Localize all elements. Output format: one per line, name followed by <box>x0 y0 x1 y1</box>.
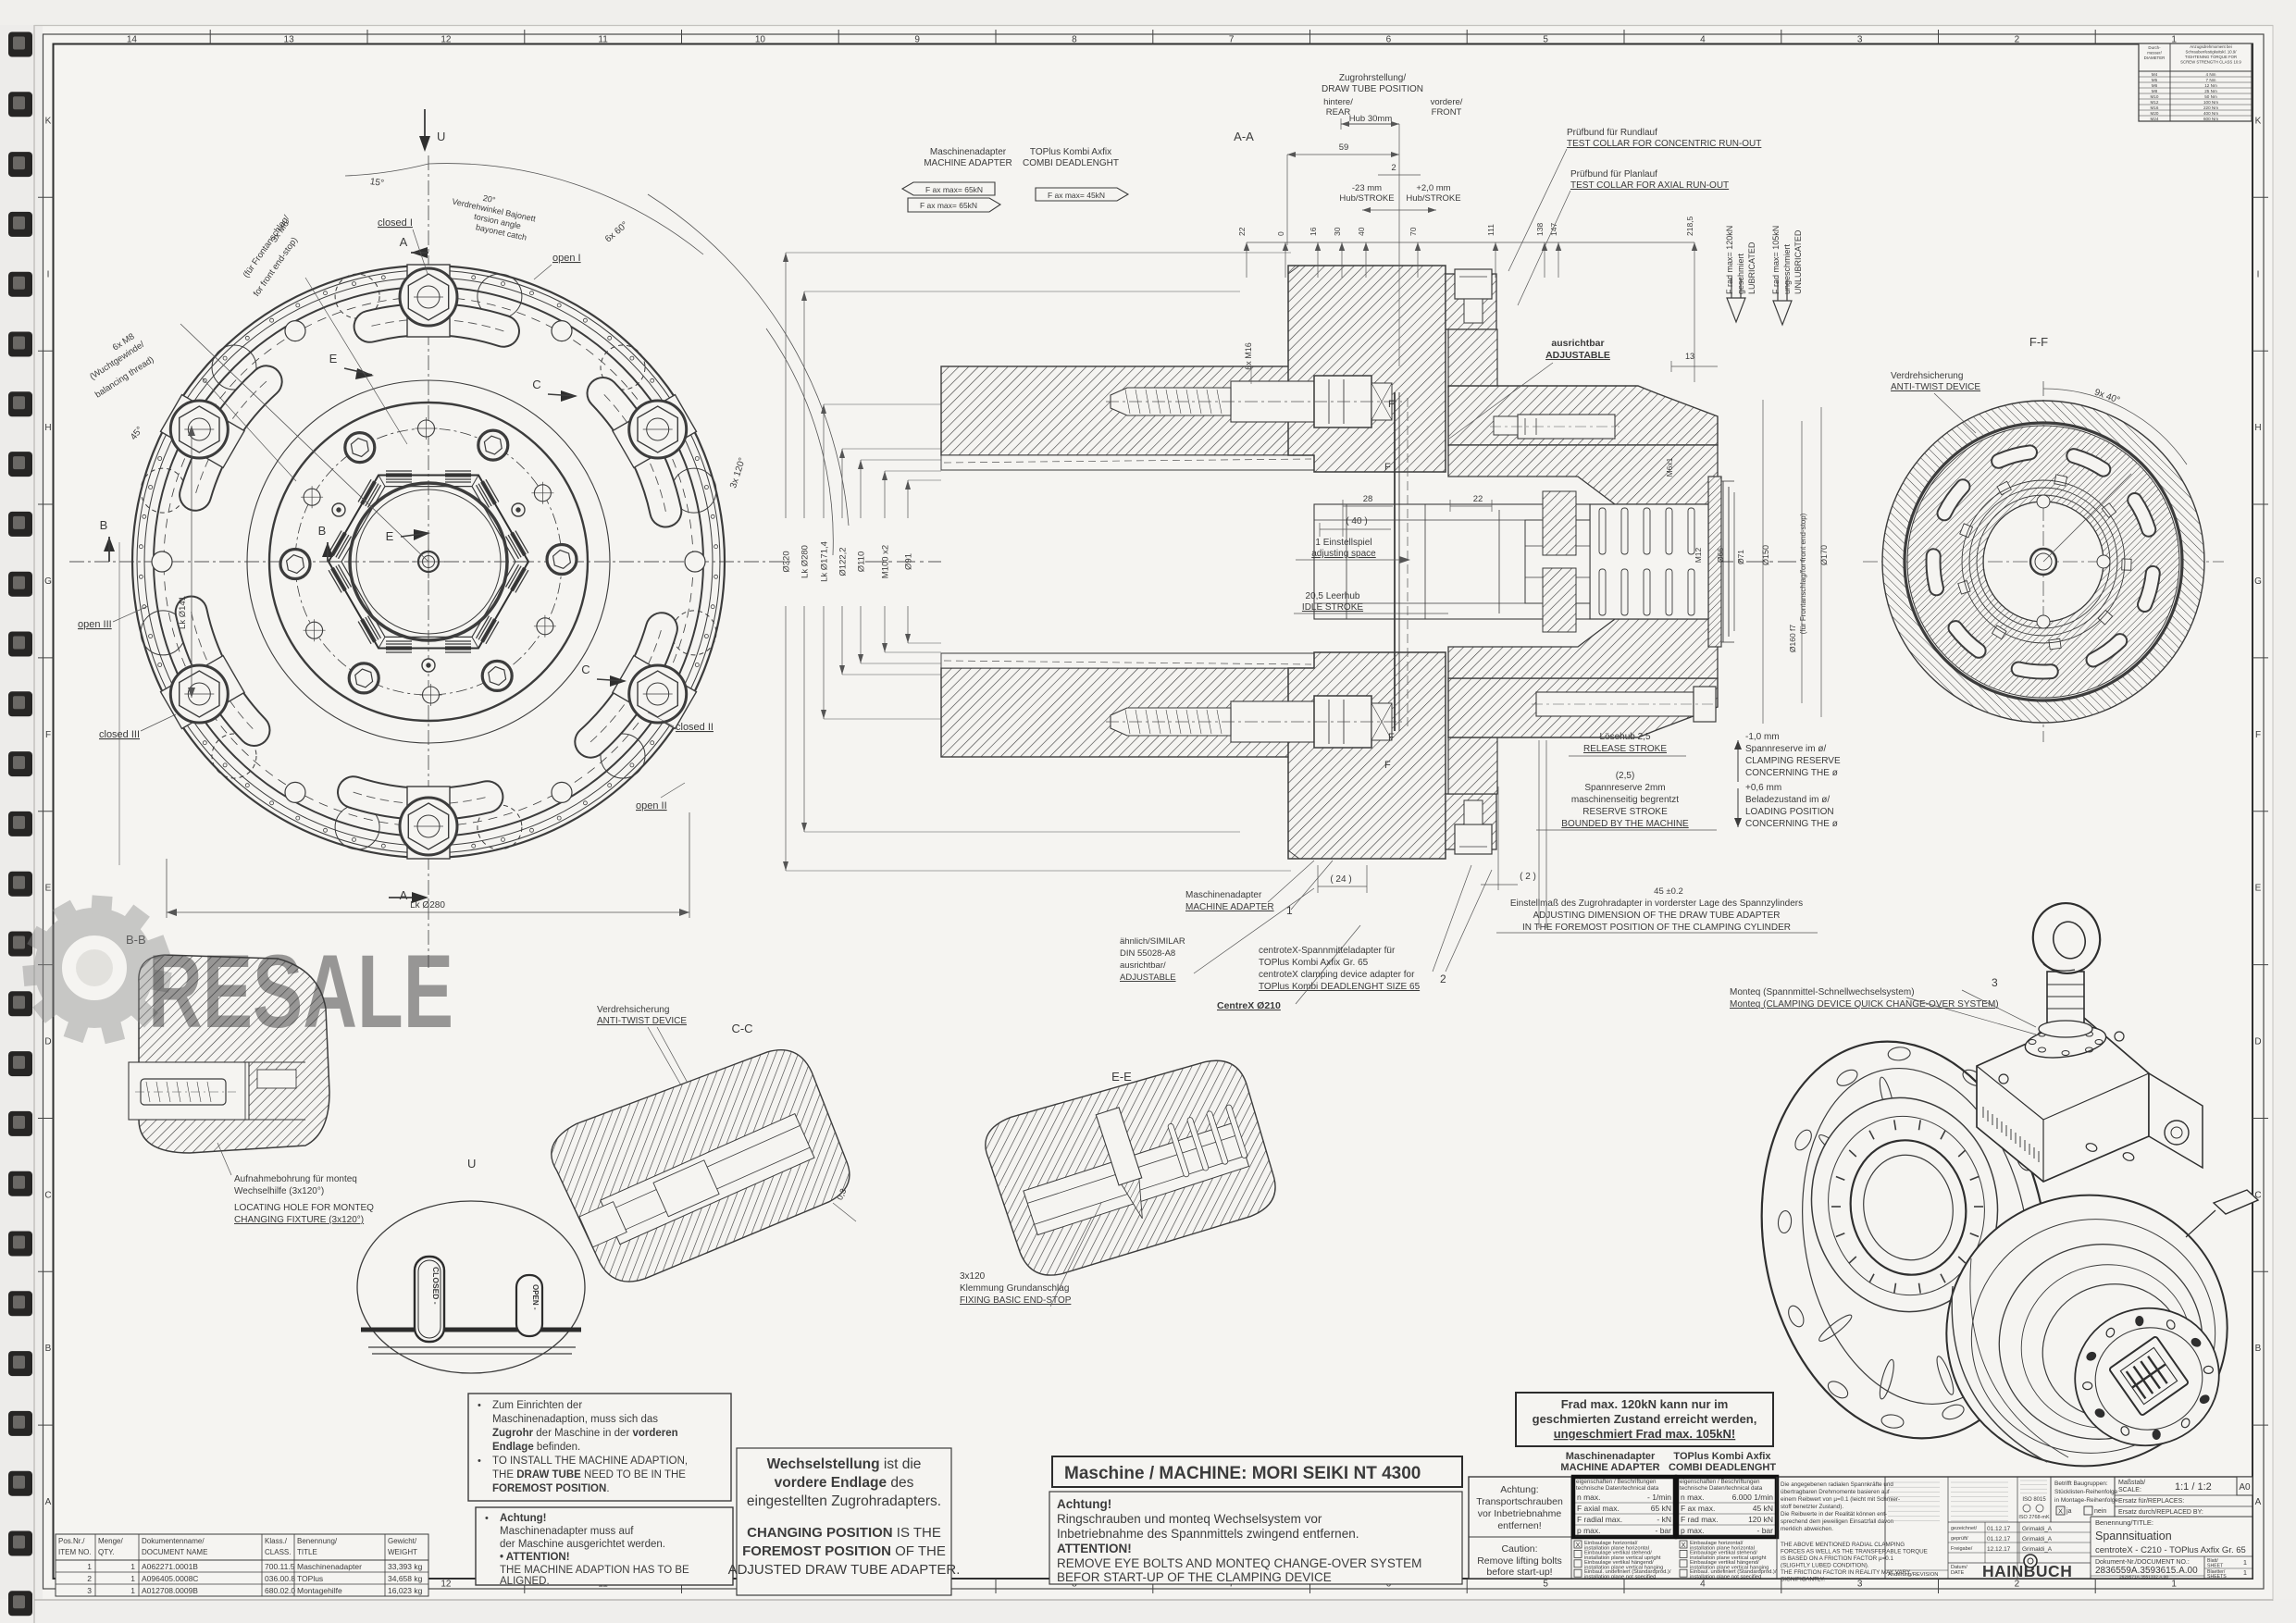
svg-text:TOPlus Kombi Axfix: TOPlus Kombi Axfix <box>1030 147 1111 157</box>
svg-text:REMOVE EYE BOLTS AND MONTEQ CH: REMOVE EYE BOLTS AND MONTEQ CHANGE-OVER … <box>1057 1556 1421 1570</box>
svg-text:Ø320: Ø320 <box>782 551 792 572</box>
svg-text:20,5 Leerhub: 20,5 Leerhub <box>1306 591 1360 601</box>
svg-text:DIN 55028-A8: DIN 55028-A8 <box>1120 948 1175 959</box>
svg-text:OPEN -: OPEN - <box>531 1284 540 1310</box>
svg-text:ADJUSTED DRAW TUBE ADAPTER.: ADJUSTED DRAW TUBE ADAPTER. <box>728 1562 961 1578</box>
svg-text:-1,0 mm: -1,0 mm <box>1745 732 1780 742</box>
svg-text:entfernen!: entfernen! <box>1497 1520 1541 1531</box>
svg-text:M20: M20 <box>2151 111 2159 116</box>
svg-text:Klemmung Grundanschlag: Klemmung Grundanschlag <box>960 1283 1069 1294</box>
svg-text:open III: open III <box>78 619 112 630</box>
svg-text:C: C <box>581 663 590 676</box>
svg-text:SCALE:: SCALE: <box>2118 1487 2141 1493</box>
svg-text:FORCES AS WELL AS THE TRANSFER: FORCES AS WELL AS THE TRANSFERABLE TORQU… <box>1781 1549 1928 1555</box>
svg-text:ADJUSTING DIMENSION OF THE DRA: ADJUSTING DIMENSION OF THE DRAW TUBE ADA… <box>1533 911 1780 921</box>
svg-text:FOREMOST POSITION.: FOREMOST POSITION. <box>492 1483 610 1494</box>
svg-text:2: 2 <box>2015 1580 2020 1590</box>
svg-text:p max.: p max. <box>1681 1526 1705 1535</box>
svg-text:F axial max.: F axial max. <box>1577 1504 1620 1513</box>
svg-text:138: 138 <box>1535 223 1545 236</box>
svg-text:50 Nm: 50 Nm <box>2204 94 2217 99</box>
svg-text:11: 11 <box>598 35 608 45</box>
svg-text:Spannreserve 2mm: Spannreserve 2mm <box>1584 783 1665 793</box>
svg-text:Gewicht/: Gewicht/ <box>388 1537 417 1545</box>
svg-text:DRAW TUBE POSITION: DRAW TUBE POSITION <box>1322 84 1423 94</box>
svg-text:vordere/: vordere/ <box>1431 97 1463 107</box>
svg-text:-23 mm: -23 mm <box>1352 183 1382 193</box>
svg-text:B: B <box>45 1344 52 1354</box>
svg-text:0: 0 <box>1276 231 1285 236</box>
svg-text:A: A <box>400 888 408 902</box>
svg-text:vordere Endlage des: vordere Endlage des <box>775 1475 914 1491</box>
svg-text:n max.: n max. <box>1577 1493 1601 1502</box>
svg-text:(für Frontanschlag/for front e: (für Frontanschlag/for front end-stop) <box>1799 513 1807 634</box>
svg-text:übertragbaren Drehmomente basi: übertragbaren Drehmomente basieren auf <box>1781 1489 1890 1495</box>
svg-text:01.12.17: 01.12.17 <box>1987 1536 2011 1542</box>
svg-text:nein: nein <box>2094 1508 2106 1515</box>
svg-text:FIXING BASIC END-STOP: FIXING BASIC END-STOP <box>960 1295 1072 1306</box>
svg-text:F: F <box>1384 462 1391 473</box>
svg-text:M6x1: M6x1 <box>1665 457 1674 477</box>
svg-text:1: 1 <box>1286 904 1293 917</box>
svg-text:ANTI-TWIST DEVICE: ANTI-TWIST DEVICE <box>597 1016 687 1026</box>
svg-text:open I: open I <box>552 253 581 264</box>
svg-text:Stücklisten-Reihenfolge: Stücklisten-Reihenfolge <box>2054 1489 2118 1495</box>
svg-text:vor Inbetriebnahme: vor Inbetriebnahme <box>1478 1508 1562 1519</box>
svg-text:2: 2 <box>1391 163 1396 173</box>
svg-text:closed III: closed III <box>99 729 140 740</box>
svg-text:Zugrohrstellung/: Zugrohrstellung/ <box>1339 73 1406 83</box>
svg-text:+2,0 mm: +2,0 mm <box>1416 183 1450 193</box>
svg-text:Lk Ø280: Lk Ø280 <box>800 545 811 578</box>
svg-text:ITEM NO.: ITEM NO. <box>58 1548 92 1556</box>
svg-text:QTY.: QTY. <box>98 1548 115 1556</box>
svg-text:28: 28 <box>1363 494 1373 504</box>
svg-text:Durch-: Durch- <box>2148 45 2161 50</box>
svg-text:RESERVE STROKE: RESERVE STROKE <box>1582 807 1668 817</box>
svg-text:IDLE STROKE: IDLE STROKE <box>1302 602 1363 613</box>
svg-text:ALIGNED.: ALIGNED. <box>500 1576 550 1587</box>
svg-text:IS BASED ON A FRICTION FACTOR: IS BASED ON A FRICTION FACTOR µ=0.1 <box>1781 1555 1893 1562</box>
svg-text:Ersatz für/REPLACES:: Ersatz für/REPLACES: <box>2118 1498 2184 1505</box>
svg-text:Maschinenadapter: Maschinenadapter <box>297 1562 362 1571</box>
svg-text:2: 2 <box>87 1574 92 1583</box>
svg-text:SCREW STRENGTH CLASS 10.9: SCREW STRENGTH CLASS 10.9 <box>2180 60 2241 65</box>
svg-text:THE DRAW TUBE NEED TO BE IN TH: THE DRAW TUBE NEED TO BE IN THE <box>492 1469 686 1481</box>
svg-text:M4: M4 <box>2152 72 2158 77</box>
svg-text:3: 3 <box>1857 1580 1863 1590</box>
svg-text:centroteX-Spannmitteladapter f: centroteX-Spannmitteladapter für <box>1259 946 1396 956</box>
svg-text:TOPlus Kombi DEADLENGHT SIZE: TOPlus Kombi DEADLENGHT SIZE 65 <box>1259 982 1421 992</box>
svg-text:•: • <box>485 1513 489 1524</box>
svg-text:DIAMETER: DIAMETER <box>2144 56 2166 60</box>
svg-text:Verdrehsicherung: Verdrehsicherung <box>597 1005 669 1015</box>
svg-text:Menge/: Menge/ <box>98 1537 123 1545</box>
svg-text:F-F: F-F <box>2029 335 2048 349</box>
svg-text:maschinenseitig begrentzt: maschinenseitig begrentzt <box>1571 795 1679 805</box>
svg-text:ADJUSTABLE: ADJUSTABLE <box>1120 973 1176 983</box>
svg-text:6: 6 <box>1386 35 1392 45</box>
svg-text:ähnlich/SIMILAR: ähnlich/SIMILAR <box>1120 936 1185 947</box>
svg-text:closed II: closed II <box>676 722 714 733</box>
svg-text:X: X <box>1682 1541 1686 1549</box>
svg-text:hintere/: hintere/ <box>1323 97 1353 107</box>
svg-text:12: 12 <box>441 1580 452 1590</box>
svg-text:eigenschaften / Beschriftungen: eigenschaften / Beschriftungen <box>1576 1479 1657 1485</box>
svg-text:F: F <box>2255 730 2261 740</box>
svg-text:COMBI DEADLENGHT: COMBI DEADLENGHT <box>1023 158 1119 168</box>
svg-text:merklich abweichen.: merklich abweichen. <box>1781 1526 1833 1532</box>
svg-text:THE MACHINE ADAPTION HAS TO BE: THE MACHINE ADAPTION HAS TO BE <box>500 1565 689 1576</box>
svg-text:Benennung/TITLE:: Benennung/TITLE: <box>2095 1518 2153 1527</box>
svg-text:1:1 / 1:2: 1:1 / 1:2 <box>2175 1481 2212 1493</box>
svg-text:D: D <box>2254 1037 2261 1047</box>
svg-text:SHEETS: SHEETS <box>2207 1574 2227 1580</box>
svg-text:CLOSED -: CLOSED - <box>431 1267 441 1305</box>
svg-text:FRONT: FRONT <box>1432 107 1462 118</box>
svg-text:before start-up!: before start-up! <box>1486 1567 1552 1578</box>
svg-text:1: 1 <box>130 1586 135 1595</box>
svg-text:59: 59 <box>1339 142 1349 153</box>
svg-text:( 24 ): ( 24 ) <box>1330 874 1351 885</box>
svg-text:messer/: messer/ <box>2147 51 2162 56</box>
svg-text:Transportschrauben: Transportschrauben <box>1476 1496 1563 1507</box>
svg-text:Achtung!: Achtung! <box>500 1513 546 1524</box>
svg-text:6.000 1/min: 6.000 1/min <box>1732 1493 1774 1502</box>
svg-text:( 40 ): ( 40 ) <box>1346 516 1367 527</box>
svg-text:E-E: E-E <box>1111 1070 1132 1084</box>
svg-text:Änderung/REVISION: Änderung/REVISION <box>1888 1571 1938 1578</box>
svg-text:A-A: A-A <box>1234 130 1254 143</box>
svg-text:10: 10 <box>755 35 766 45</box>
svg-text:M6: M6 <box>2152 83 2158 88</box>
svg-text:Monteq (CLAMPING DEVICE QUICK: Monteq (CLAMPING DEVICE QUICK CHANGE-OVE… <box>1730 999 1999 1010</box>
svg-text:CHANGING POSITION IS THE: CHANGING POSITION IS THE <box>747 1525 941 1541</box>
svg-text:ausrichtbar/: ausrichtbar/ <box>1120 960 1166 971</box>
svg-text:Anzugsdrehmoment bei: Anzugsdrehmoment bei <box>2190 44 2231 49</box>
svg-text:F ax max.: F ax max. <box>1681 1504 1715 1513</box>
svg-text:TEST COLLAR FOR AXIAL RUN-OUT: TEST COLLAR FOR AXIAL RUN-OUT <box>1570 180 1729 191</box>
svg-text:Hub/STROKE: Hub/STROKE <box>1339 193 1394 204</box>
svg-text:CentreX Ø210: CentreX Ø210 <box>1217 1000 1281 1011</box>
svg-text:TO INSTALL THE MACHINE ADAPTIO: TO INSTALL THE MACHINE ADAPTION, <box>492 1456 688 1467</box>
svg-text:IN THE FOREMOST POSITION OF TH: IN THE FOREMOST POSITION OF THE CLAMPING… <box>1522 923 1791 933</box>
svg-text:einem Reibwert von µ=0.1 (leic: einem Reibwert von µ=0.1 (leicht mit Sch… <box>1781 1496 1900 1503</box>
svg-text:• ATTENTION!: • ATTENTION! <box>500 1552 570 1563</box>
svg-text:Lösehub 2,5: Lösehub 2,5 <box>1599 732 1650 742</box>
svg-text:TOPlus Kombi Axfix: TOPlus Kombi Axfix <box>1673 1451 1771 1462</box>
svg-text:F: F <box>45 730 51 740</box>
svg-text:Zum Einrichten der: Zum Einrichten der <box>492 1400 582 1411</box>
svg-text:A0: A0 <box>2239 1482 2251 1493</box>
svg-text:F ax max= 45kN: F ax max= 45kN <box>1048 191 1105 200</box>
svg-text:Schraubenfestigkeitskl. 10.9/: Schraubenfestigkeitskl. 10.9/ <box>2186 50 2238 55</box>
svg-text:M8: M8 <box>2152 89 2158 93</box>
svg-text:centroteX clamping device adap: centroteX clamping device adapter for <box>1259 970 1415 980</box>
svg-text:- bar: - bar <box>1757 1526 1774 1535</box>
svg-text:15°: 15° <box>369 177 385 189</box>
svg-text:Ø66: Ø66 <box>1716 548 1725 563</box>
svg-text:34,658 kg: 34,658 kg <box>388 1574 423 1583</box>
svg-text:M12: M12 <box>2151 100 2159 105</box>
svg-text:120 kN: 120 kN <box>1748 1515 1773 1524</box>
svg-text:Maschinenadapter: Maschinenadapter <box>1566 1451 1656 1462</box>
svg-text:Klass./: Klass./ <box>265 1537 288 1545</box>
svg-text:adjusting space: adjusting space <box>1311 549 1376 559</box>
svg-text:Pos.Nr./: Pos.Nr./ <box>58 1537 85 1545</box>
svg-text:X: X <box>2058 1507 2063 1516</box>
svg-text:Grimaldi_A: Grimaldi_A <box>2022 1536 2053 1542</box>
svg-text:M24: M24 <box>2151 117 2159 121</box>
svg-text:16: 16 <box>1309 227 1318 236</box>
svg-text:7: 7 <box>1229 35 1235 45</box>
svg-text:M5: M5 <box>2152 78 2158 82</box>
svg-text:700.11.5: 700.11.5 <box>265 1562 295 1571</box>
svg-text:M12: M12 <box>1694 547 1703 563</box>
svg-text:Spannsituation: Spannsituation <box>2095 1530 2172 1542</box>
svg-text:100 Nm: 100 Nm <box>2203 100 2218 105</box>
svg-text:Prüfbund für Rundlauf: Prüfbund für Rundlauf <box>1567 128 1657 138</box>
svg-text:16,023 kg: 16,023 kg <box>388 1586 423 1595</box>
svg-text:F: F <box>1384 760 1391 771</box>
svg-text:C: C <box>44 1190 51 1200</box>
svg-text:111: 111 <box>1486 224 1496 236</box>
svg-text:DATE: DATE <box>1951 1570 1965 1576</box>
svg-text:- kN: - kN <box>1657 1515 1671 1524</box>
svg-text:2: 2 <box>1440 973 1446 985</box>
svg-text:1: 1 <box>2171 1580 2177 1590</box>
svg-text:3: 3 <box>87 1586 92 1595</box>
svg-text:LOADING POSITION: LOADING POSITION <box>1745 807 1834 817</box>
svg-text:•: • <box>478 1400 481 1411</box>
svg-text:Grimaldi_A: Grimaldi_A <box>2022 1546 2053 1553</box>
svg-text:12.12.17: 12.12.17 <box>1987 1546 2011 1553</box>
svg-text:13: 13 <box>1685 352 1694 361</box>
svg-text:4 Nm: 4 Nm <box>2206 72 2216 77</box>
svg-text:9: 9 <box>914 35 920 45</box>
svg-text:Montagehilfe: Montagehilfe <box>297 1586 342 1595</box>
svg-text:DOCUMENT NAME: DOCUMENT NAME <box>142 1548 207 1556</box>
svg-text:14: 14 <box>127 35 138 45</box>
svg-text:ja: ja <box>2066 1508 2072 1515</box>
svg-text:B: B <box>2255 1344 2262 1354</box>
svg-text:+0,6 mm: +0,6 mm <box>1745 783 1781 793</box>
svg-text:B: B <box>318 524 327 538</box>
svg-text:F: F <box>1388 399 1395 410</box>
svg-text:Die Reibwerte in der Realität: Die Reibwerte in der Realität können ent… <box>1781 1511 1887 1518</box>
svg-text:Zugrohr der Maschine in der vo: Zugrohr der Maschine in der vorderen <box>492 1428 678 1439</box>
svg-text:4: 4 <box>1700 35 1706 45</box>
svg-text:TOPlus: TOPlus <box>297 1574 323 1583</box>
svg-text:- bar: - bar <box>1656 1526 1672 1535</box>
svg-text:installation plane not specifi: installation plane not specified <box>1690 1575 1761 1580</box>
svg-text:Aufnahmebohrung für monteq: Aufnahmebohrung für monteq <box>234 1174 357 1184</box>
svg-text:Ersatz durch/REPLACED BY:: Ersatz durch/REPLACED BY: <box>2118 1509 2203 1516</box>
svg-text:12 Nm: 12 Nm <box>2204 83 2217 88</box>
svg-text:Einstellmaß des Zugrohradapter: Einstellmaß des Zugrohradapter in vorder… <box>1510 898 1803 909</box>
svg-text:5: 5 <box>1543 35 1548 45</box>
svg-text:F radial max.: F radial max. <box>1577 1515 1622 1524</box>
svg-text:Dokument-Nr./DOCUMENT NO.:: Dokument-Nr./DOCUMENT NO.: <box>2095 1559 2190 1566</box>
svg-text:1: 1 <box>2243 1558 2247 1567</box>
svg-text:technische Daten/technical dat: technische Daten/technical data <box>1576 1485 1659 1492</box>
svg-text:2: 2 <box>2015 35 2020 45</box>
svg-text:LOCATING HOLE FOR MONTEQ: LOCATING HOLE FOR MONTEQ <box>234 1203 374 1213</box>
svg-text:I: I <box>47 269 50 279</box>
svg-text:400 Nm: 400 Nm <box>2203 111 2218 116</box>
svg-text:Ø170: Ø170 <box>1819 545 1829 565</box>
svg-text:5: 5 <box>1543 1580 1548 1590</box>
svg-text:40: 40 <box>1357 227 1366 236</box>
svg-text:MACHINE ADAPTER: MACHINE ADAPTER <box>924 158 1012 168</box>
svg-text:F rad max= 105kN: F rad max= 105kN <box>1771 226 1781 294</box>
svg-text:G: G <box>2254 576 2262 587</box>
svg-text:- 1/min: - 1/min <box>1647 1493 1671 1502</box>
svg-text:Lk Ø141: Lk Ø141 <box>178 596 188 629</box>
svg-text:Monteq (Spannmittel-Schnellwec: Monteq (Spannmittel-Schnellwechselsystem… <box>1730 987 1915 997</box>
svg-text:A062271.0001B: A062271.0001B <box>142 1562 198 1571</box>
svg-text:H: H <box>44 423 51 433</box>
svg-text:2836559A.3593615.A.00: 2836559A.3593615.A.00 <box>2095 1566 2198 1576</box>
svg-text:eingestellten Zugrohradapters.: eingestellten Zugrohradapters. <box>747 1493 941 1509</box>
svg-text:ISO 8015: ISO 8015 <box>2022 1497 2046 1503</box>
svg-text:CONCERNING THE ø: CONCERNING THE ø <box>1745 819 1838 829</box>
svg-text:Die angegebenen radialen Spann: Die angegebenen radialen Spannkräfte und <box>1781 1481 1893 1488</box>
svg-text:3x120: 3x120 <box>960 1271 986 1282</box>
svg-text:Maschinenadapter: Maschinenadapter <box>1185 890 1262 900</box>
svg-text:Ø110: Ø110 <box>857 551 867 573</box>
svg-text:H: H <box>2254 423 2261 433</box>
svg-text:F ax max= 65kN: F ax max= 65kN <box>920 201 977 210</box>
svg-text:K: K <box>2255 116 2262 126</box>
svg-text:CONCERNING THE ø: CONCERNING THE ø <box>1745 768 1838 778</box>
svg-text:65 kN: 65 kN <box>1651 1504 1671 1513</box>
svg-text:REAR: REAR <box>1326 107 1351 118</box>
svg-text:der Maschine ausgerichtet werd: der Maschine ausgerichtet werden. <box>500 1539 665 1550</box>
svg-text:RESALE: RESALE <box>148 934 453 1049</box>
svg-text:ADJUSTABLE: ADJUSTABLE <box>1545 350 1610 361</box>
svg-text:Inbetriebnahme des Spannmittel: Inbetriebnahme des Spannmittels zwingend… <box>1057 1527 1359 1541</box>
svg-text:2629571A.3551332.A.00: 2629571A.3551332.A.00 <box>2119 1575 2168 1580</box>
svg-text:30: 30 <box>1333 227 1342 236</box>
svg-text:Prüfbund für Planlauf: Prüfbund für Planlauf <box>1570 169 1657 180</box>
svg-text:n max.: n max. <box>1681 1493 1705 1502</box>
svg-text:1: 1 <box>130 1574 135 1583</box>
svg-text:Maschinenadaption, muss sich d: Maschinenadaption, muss sich das <box>492 1414 658 1425</box>
svg-text:TIGHTENING TORQUE FOR: TIGHTENING TORQUE FOR <box>2185 55 2237 59</box>
svg-text:Dokumentenname/: Dokumentenname/ <box>142 1537 205 1545</box>
svg-text:Betrifft Baugruppen:: Betrifft Baugruppen: <box>2054 1481 2108 1487</box>
svg-text:MACHINE ADAPTER: MACHINE ADAPTER <box>1560 1462 1659 1473</box>
svg-text:M16: M16 <box>2151 105 2159 110</box>
svg-text:WEIGHT: WEIGHT <box>388 1548 417 1556</box>
svg-text:1 Einstellspiel: 1 Einstellspiel <box>1315 538 1371 548</box>
svg-text:p max.: p max. <box>1577 1526 1601 1535</box>
svg-text:E: E <box>386 529 394 543</box>
svg-text:LUBRICATED: LUBRICATED <box>1747 242 1756 294</box>
svg-text:7 Nm: 7 Nm <box>2206 78 2216 82</box>
svg-text:Endlage befinden.: Endlage befinden. <box>492 1442 580 1453</box>
svg-text:8: 8 <box>1072 35 1077 45</box>
svg-text:Caution:: Caution: <box>1501 1543 1537 1555</box>
svg-text:Hub/STROKE: Hub/STROKE <box>1406 193 1460 204</box>
svg-text:centroteX - C210 - TOPlus Axfi: centroteX - C210 - TOPlus Axfix Gr. 65 <box>2095 1545 2246 1555</box>
svg-text:Maschine / MACHINE: MORI SEIKI: Maschine / MACHINE: MORI SEIKI NT 4300 <box>1064 1464 1421 1483</box>
svg-text:UNLUBRICATED: UNLUBRICATED <box>1793 229 1803 294</box>
svg-text:Ø122,2: Ø122,2 <box>838 547 849 576</box>
svg-text:ungeschmiert Frad max. 105kN!: ungeschmiert Frad max. 105kN! <box>1554 1427 1736 1441</box>
svg-text:Freigabe/: Freigabe/ <box>1951 1546 1973 1552</box>
svg-text:22: 22 <box>1473 494 1483 504</box>
svg-text:Ø160 f7: Ø160 f7 <box>1788 625 1797 653</box>
svg-text:Maßstab/: Maßstab/ <box>2118 1480 2145 1486</box>
svg-text:(2,5): (2,5) <box>1616 771 1635 781</box>
svg-text:600 Nm: 600 Nm <box>2203 117 2218 121</box>
svg-text:K: K <box>45 116 52 126</box>
svg-text:3: 3 <box>1992 976 1998 989</box>
svg-text:Spannreserve im ø/: Spannreserve im ø/ <box>1745 744 1826 754</box>
svg-text:B: B <box>100 518 108 532</box>
svg-text:Maschinenadapter: Maschinenadapter <box>930 147 1007 157</box>
svg-text:G: G <box>44 576 52 587</box>
svg-text:•: • <box>478 1456 481 1467</box>
svg-text:COMBI DEADLENGHT: COMBI DEADLENGHT <box>1669 1462 1776 1473</box>
svg-text:F: F <box>1388 732 1395 743</box>
svg-text:F rad max.: F rad max. <box>1681 1515 1719 1524</box>
svg-text:MACHINE ADAPTER: MACHINE ADAPTER <box>1185 902 1274 912</box>
svg-text:Lk Ø171,4: Lk Ø171,4 <box>820 541 830 582</box>
svg-text:A012708.0009B: A012708.0009B <box>142 1586 198 1595</box>
svg-text:A: A <box>2255 1497 2262 1507</box>
svg-text:SIGNIFICANTLY.: SIGNIFICANTLY. <box>1781 1577 1825 1583</box>
svg-text:45 ±0.2: 45 ±0.2 <box>1654 886 1683 897</box>
svg-text:TEST COLLAR FOR CONCENTRIC RUN: TEST COLLAR FOR CONCENTRIC RUN-OUT <box>1567 139 1761 149</box>
svg-text:218,5: 218,5 <box>1685 216 1694 236</box>
svg-text:(SLIGHTLY LUBED CONDITION).: (SLIGHTLY LUBED CONDITION). <box>1781 1563 1869 1569</box>
svg-text:12: 12 <box>441 35 452 45</box>
svg-text:25 Nm: 25 Nm <box>2204 89 2217 93</box>
svg-text:technische Daten/technical dat: technische Daten/technical data <box>1680 1485 1763 1492</box>
svg-text:eigenschaften / Beschriftungen: eigenschaften / Beschriftungen <box>1680 1479 1760 1485</box>
svg-text:TITLE: TITLE <box>297 1548 317 1556</box>
svg-text:70: 70 <box>1409 227 1418 236</box>
svg-text:1: 1 <box>130 1562 135 1571</box>
svg-text:Ø91: Ø91 <box>904 553 914 570</box>
svg-text:( 2 ): ( 2 ) <box>1520 872 1536 882</box>
svg-text:Hub 30mm: Hub 30mm <box>1349 114 1393 124</box>
svg-text:CHANGING FIXTURE (3x120°): CHANGING FIXTURE (3x120°) <box>234 1215 364 1225</box>
svg-text:Benennung/: Benennung/ <box>297 1537 338 1545</box>
svg-text:1: 1 <box>2243 1568 2247 1577</box>
svg-text:C: C <box>532 378 540 391</box>
svg-text:THE ABOVE MENTIONED RADIAL CLA: THE ABOVE MENTIONED RADIAL CLAMPING <box>1781 1542 1905 1548</box>
svg-text:A096405.0008C: A096405.0008C <box>142 1574 198 1583</box>
svg-text:E: E <box>45 884 52 894</box>
svg-text:Achtung:: Achtung: <box>1500 1484 1538 1495</box>
svg-text:Frad max. 120kN kann nur im: Frad max. 120kN kann nur im <box>1561 1397 1729 1411</box>
svg-text:Ringschrauben und monteq Wechs: Ringschrauben und monteq Wechselsystem v… <box>1057 1512 1322 1526</box>
svg-text:Ø150: Ø150 <box>1761 545 1770 565</box>
svg-text:stoff benetzter Zustand).: stoff benetzter Zustand). <box>1781 1504 1843 1510</box>
svg-text:45 kN: 45 kN <box>1753 1504 1773 1513</box>
svg-text:ausrichtbar: ausrichtbar <box>1551 338 1604 349</box>
svg-text:A: A <box>400 235 408 249</box>
svg-text:closed I: closed I <box>378 217 413 229</box>
svg-text:in Montage-Reihenfolge: in Montage-Reihenfolge <box>2054 1497 2118 1504</box>
svg-text:ATTENTION!: ATTENTION! <box>1057 1542 1132 1555</box>
svg-text:TOPlus Kombi Axfix Gr. 65: TOPlus Kombi Axfix Gr. 65 <box>1259 958 1369 968</box>
svg-text:D: D <box>44 1037 51 1047</box>
